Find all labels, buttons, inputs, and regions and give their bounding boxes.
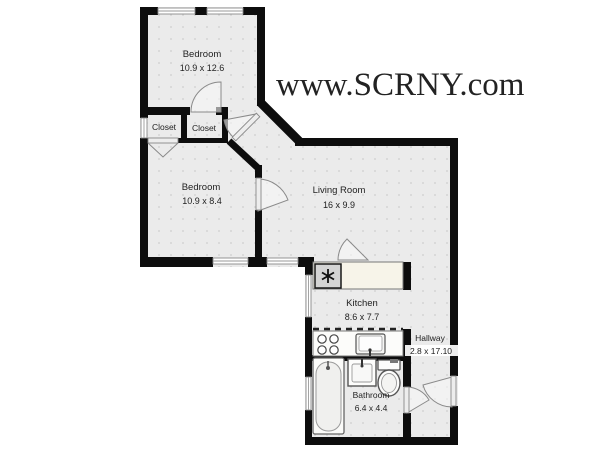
- wall-segment: [195, 7, 207, 15]
- hallway-dims: 2.8 x 17.10: [410, 346, 452, 356]
- bathroom-sink: [348, 359, 376, 386]
- window: [306, 377, 311, 410]
- closet-right-label: Closet: [192, 123, 217, 133]
- wall-segment: [140, 257, 213, 267]
- wall-segment: [403, 262, 411, 290]
- window: [141, 118, 147, 138]
- kitchen-sink: [356, 334, 385, 356]
- closet-left-slider: [148, 138, 178, 143]
- wall-segment: [305, 317, 312, 377]
- wall-segment: [450, 138, 458, 376]
- apartment-entry-door-leaf: [451, 376, 456, 406]
- watermark: www.SCRNY.com: [276, 67, 525, 103]
- bedroom2-door-leaf: [256, 178, 261, 210]
- bedroom1-name: Bedroom: [183, 49, 222, 60]
- wall-segment: [255, 165, 262, 178]
- wall-segment: [178, 138, 228, 143]
- bathtub: [313, 358, 344, 434]
- wall-segment: [248, 257, 267, 267]
- window: [158, 8, 195, 14]
- closet-left-label: Closet: [152, 122, 177, 132]
- window: [213, 258, 248, 264]
- bathroom-door-leaf: [404, 387, 409, 413]
- living-room-dims: 16 x 9.9: [323, 200, 355, 210]
- window: [267, 258, 298, 264]
- floorplan-svg: Bedroom 10.9 x 12.6 Closet Closet Bedroo…: [0, 0, 600, 450]
- wall-segment: [255, 210, 262, 257]
- wall-segment: [140, 138, 148, 267]
- wall-segment: [403, 413, 411, 445]
- bedroom2-dims: 10.9 x 8.4: [182, 196, 222, 206]
- bedroom1-dims: 10.9 x 12.6: [180, 63, 225, 73]
- kitchen-dims: 8.6 x 7.7: [345, 312, 380, 322]
- floorplan-page: Bedroom 10.9 x 12.6 Closet Closet Bedroo…: [0, 0, 600, 450]
- wall-segment: [140, 7, 148, 118]
- bedroom2-name: Bedroom: [182, 182, 221, 193]
- wall-segment: [257, 7, 265, 106]
- hallway-name: Hallway: [415, 333, 446, 343]
- wall-segment: [140, 107, 190, 115]
- wall-segment: [403, 355, 411, 387]
- bathroom-name: Bathroom: [353, 390, 390, 400]
- living-room-name: Living Room: [313, 185, 366, 196]
- bathroom-dims: 6.4 x 4.4: [355, 403, 388, 413]
- wall-segment: [305, 410, 312, 445]
- wall-segment: [305, 437, 458, 445]
- kitchen-name: Kitchen: [346, 298, 378, 309]
- wall-segment: [295, 138, 458, 146]
- wall-segment: [298, 257, 307, 267]
- window: [306, 275, 311, 317]
- window: [207, 8, 243, 14]
